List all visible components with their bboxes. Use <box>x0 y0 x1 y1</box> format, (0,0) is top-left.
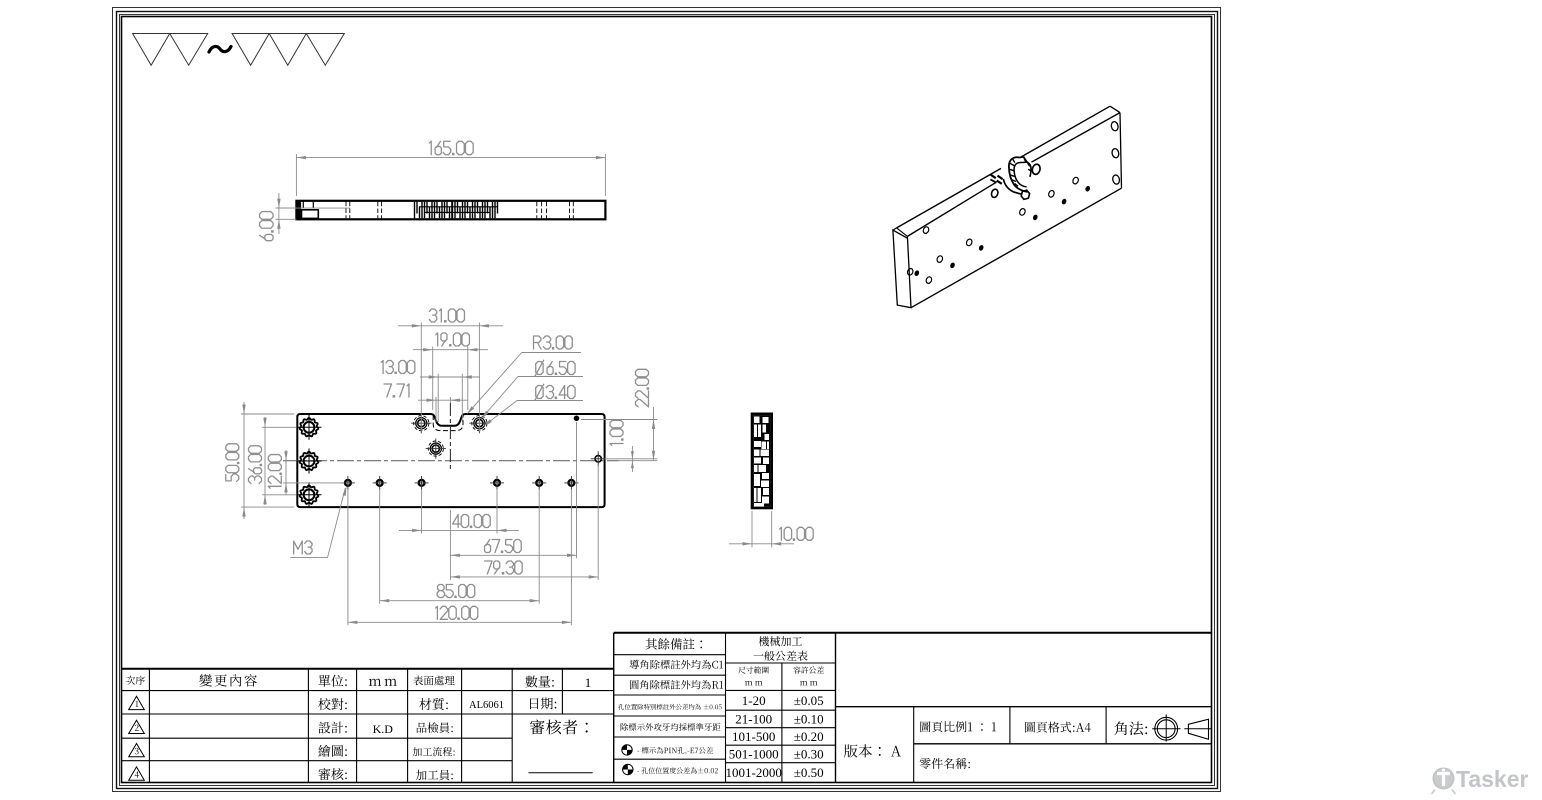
svg-text:21-100: 21-100 <box>735 712 772 727</box>
svg-text:101-500: 101-500 <box>732 729 775 744</box>
svg-text:1: 1 <box>585 675 592 690</box>
svg-text:±0.05: ±0.05 <box>794 693 824 708</box>
svg-text:K.D: K.D <box>373 722 394 736</box>
svg-text:±0.30: ±0.30 <box>794 747 824 762</box>
svg-text:1-20: 1-20 <box>742 693 766 708</box>
svg-text:±0.20: ±0.20 <box>794 729 824 744</box>
svg-text:501-1000: 501-1000 <box>729 747 779 762</box>
svg-text:±0.10: ±0.10 <box>794 712 824 727</box>
svg-text:Tasker: Tasker <box>1456 766 1529 792</box>
svg-text:1001-2000: 1001-2000 <box>726 765 782 780</box>
svg-text:±0.50: ±0.50 <box>794 765 824 780</box>
svg-text:AL6061: AL6061 <box>469 700 504 711</box>
